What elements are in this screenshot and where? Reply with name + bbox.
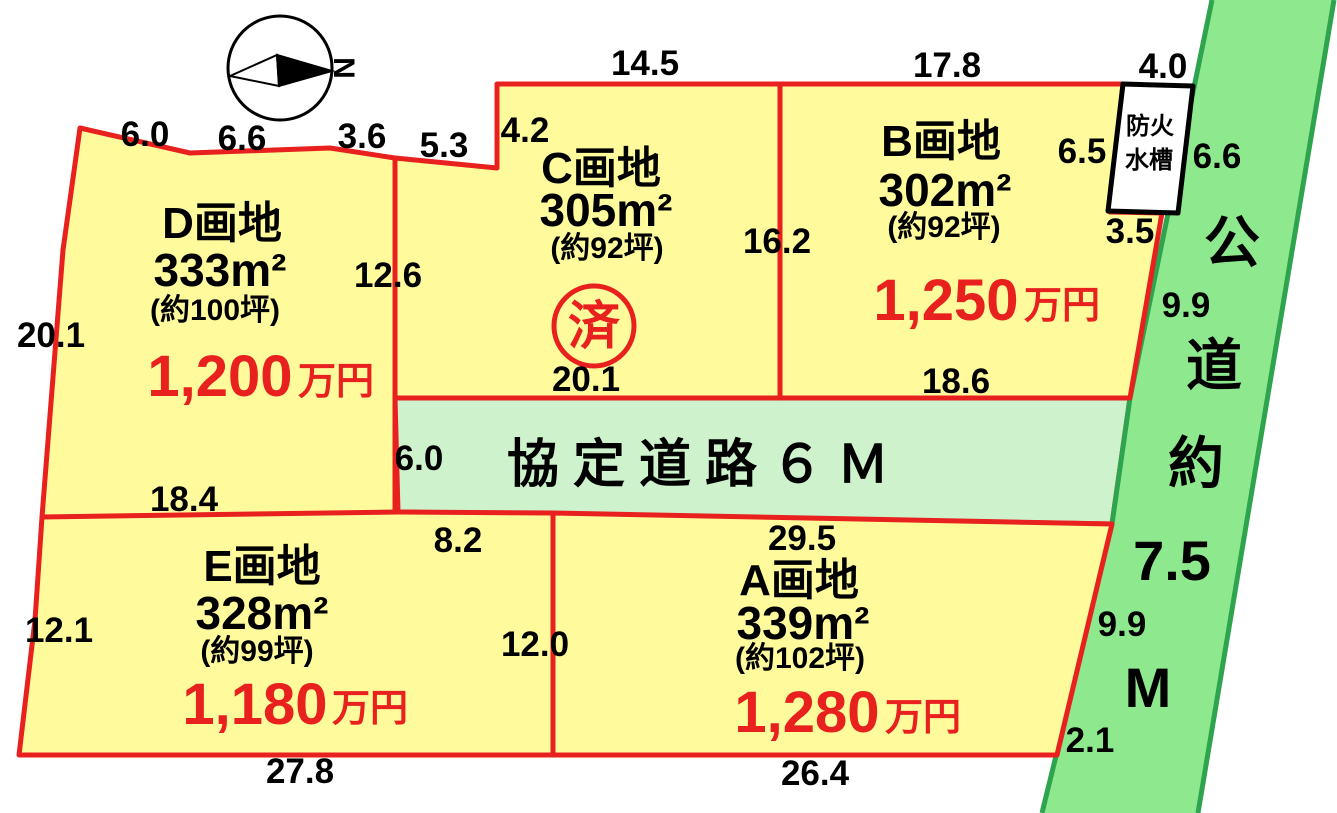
dim-c-step: 5.3 [420, 126, 469, 165]
compass: N [228, 16, 360, 120]
fire-tank-label-line2: 水槽 [1125, 147, 1173, 174]
dim-a-top: 29.5 [768, 519, 836, 558]
dim-tank-top: 4.0 [1139, 47, 1188, 86]
dim-b-top: 17.8 [913, 46, 981, 85]
parcel-d-name: D画地 [162, 199, 282, 248]
parcel-e-area: 328m² [196, 587, 329, 639]
dim-tank-left: 6.5 [1058, 132, 1107, 171]
parcel-b-area: 302m² [879, 164, 1012, 216]
agreement-road-label: 協定道路６Ｍ [507, 436, 903, 494]
dim-a-corner: 2.1 [1066, 721, 1115, 760]
parcel-b-price: 1,250 [873, 268, 1018, 333]
parcel-d-area: 333m² [154, 244, 287, 296]
parcel-c-tsubo: (約92坪) [550, 232, 663, 265]
dim-e-bottom: 27.8 [266, 752, 334, 791]
plot-map-svg: 防火 水槽 N D画地 333m² (約100坪) 1,200 万円 C画地 3… [0, 0, 1337, 813]
public-road-char-3: 約 [1168, 432, 1224, 495]
parcel-b-tsubo: (約92坪) [887, 211, 1000, 244]
land-plot-map: 防火 水槽 N D画地 333m² (約100坪) 1,200 万円 C画地 3… [0, 0, 1337, 813]
parcel-e-tsubo: (約99坪) [200, 635, 313, 668]
dim-a-bottom: 26.4 [781, 754, 850, 793]
parcel-a-price-unit: 万円 [885, 697, 961, 739]
dim-b-bottom: 18.6 [922, 362, 990, 401]
dim-b-road: 9.9 [1162, 286, 1211, 325]
parcel-e-price: 1,180 [182, 672, 327, 737]
parcel-c-area: 305m² [540, 184, 673, 236]
dim-d-top-1: 6.0 [121, 115, 170, 154]
dim-c-top: 14.5 [611, 44, 679, 83]
dim-d-top-2: 6.6 [218, 119, 267, 158]
dim-a-road: 9.9 [1098, 605, 1147, 644]
parcel-d-tsubo: (約100坪) [150, 294, 280, 327]
parcel-a-tsubo: (約102坪) [735, 642, 865, 675]
dim-cb-boundary: 16.2 [743, 222, 811, 261]
dim-tank-right: 6.6 [1193, 137, 1242, 176]
public-road-char-5: M [1125, 656, 1172, 719]
public-road-char-2: 道 [1186, 334, 1242, 397]
dim-c-bottom: 20.1 [552, 360, 620, 399]
dim-e-left: 12.1 [25, 611, 93, 650]
sold-stamp-text: 済 [568, 298, 621, 356]
compass-north-label: N [327, 57, 360, 79]
parcel-d-price: 1,200 [147, 344, 292, 409]
dim-c-left-top: 4.2 [501, 111, 550, 150]
parcel-a-price: 1,280 [734, 680, 879, 745]
dim-tank-bottom: 3.5 [1106, 212, 1155, 251]
dim-e-top-road: 8.2 [434, 521, 483, 560]
parcel-b-name: B画地 [881, 117, 1001, 166]
dim-dc-boundary: 12.6 [354, 256, 422, 295]
dim-d-left: 20.1 [17, 316, 85, 355]
parcel-e-price-unit: 万円 [332, 688, 408, 730]
dim-d-bottom: 18.4 [150, 480, 219, 519]
dim-ea-boundary: 12.0 [501, 625, 569, 664]
parcel-d-price-unit: 万円 [298, 361, 374, 403]
dim-d-top-3: 3.6 [338, 117, 387, 156]
parcel-e-name: E画地 [203, 542, 320, 591]
parcel-b-price-unit: 万円 [1024, 285, 1100, 327]
agreement-road-width: 6.0 [395, 439, 444, 478]
fire-tank-label-line1: 防火 [1126, 112, 1174, 140]
public-road-char-1: 公 [1204, 211, 1260, 274]
public-road-char-4: 7.5 [1133, 529, 1211, 592]
